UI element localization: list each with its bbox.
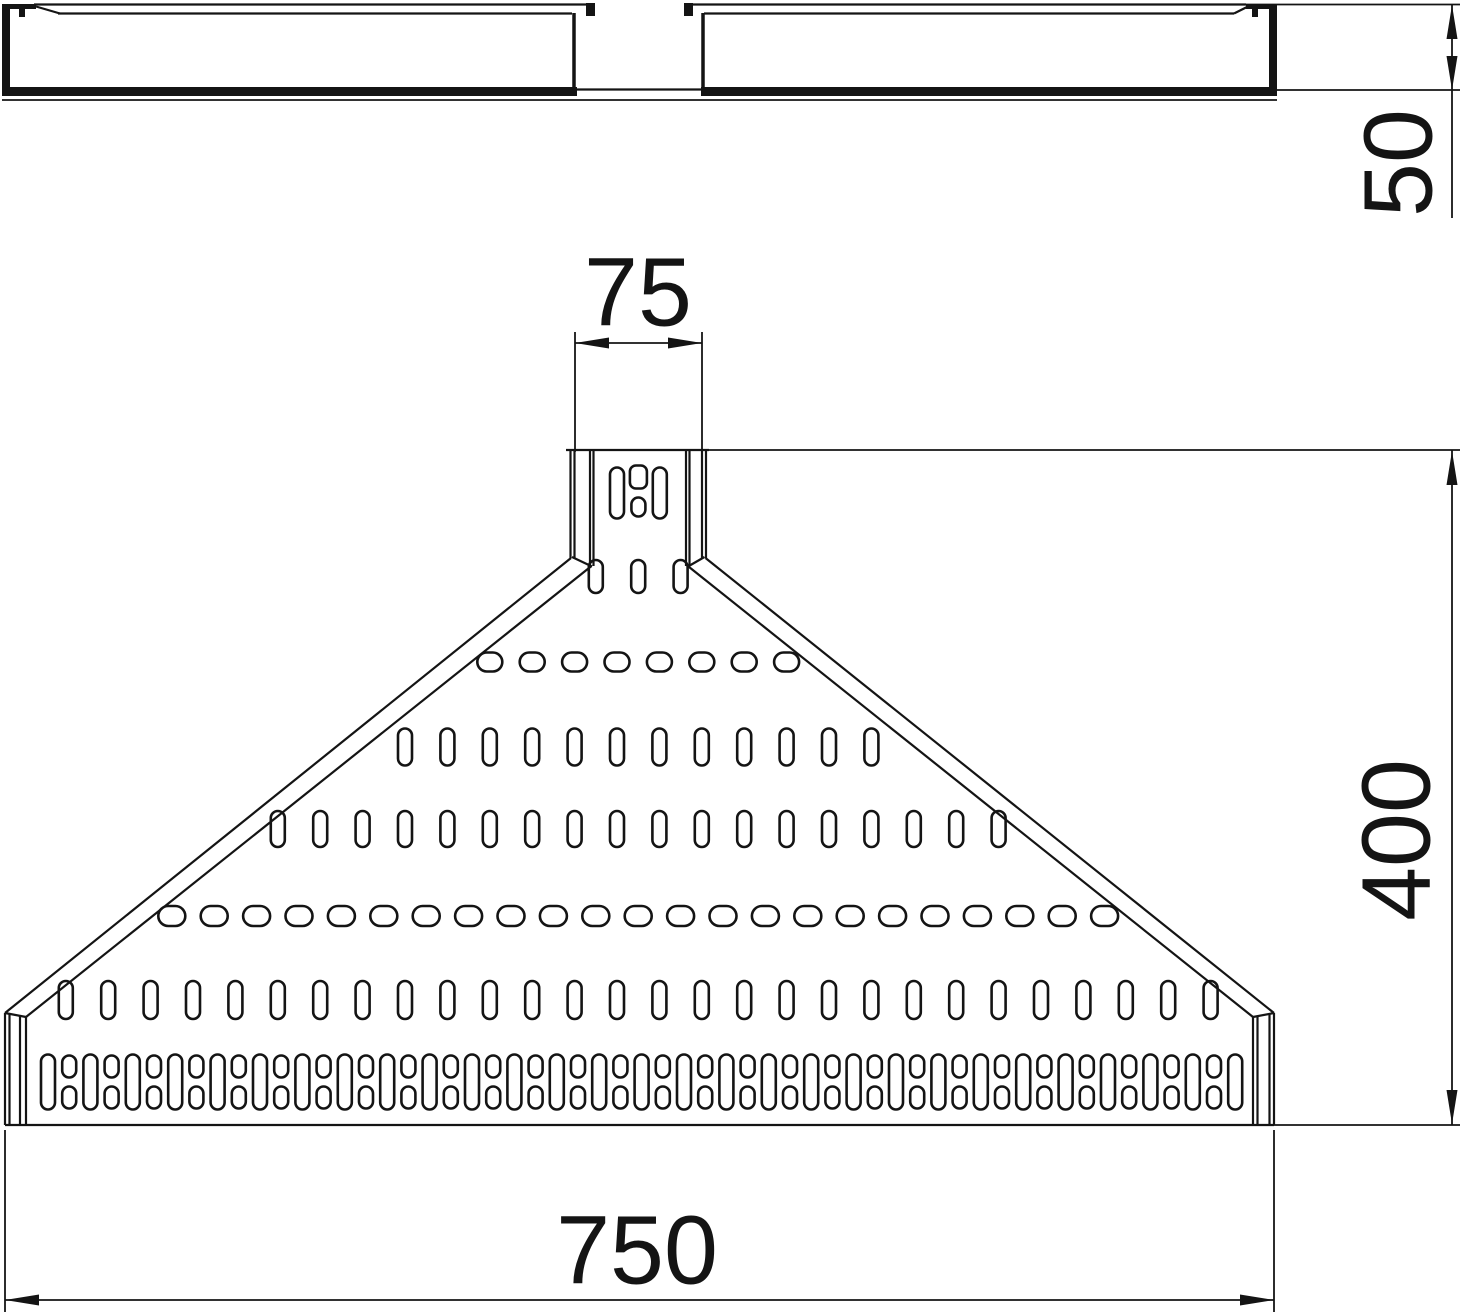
perforation-slot [992, 811, 1006, 847]
perforation-slot [483, 729, 497, 766]
perforation-slot [635, 1055, 649, 1110]
perforation-slot [1034, 981, 1048, 1019]
perforation-slot [313, 811, 327, 847]
dimension-label-top-width: 75 [584, 238, 692, 347]
perforation-slot [783, 1056, 797, 1078]
perforation-slot [105, 1056, 119, 1078]
dimension-length-400: 400 [709, 450, 1460, 1125]
perforation-slot [822, 811, 836, 847]
perforation-slot [440, 729, 454, 766]
perforation-slot [868, 1056, 882, 1078]
perforation-slot [1080, 1087, 1094, 1109]
perforation-slot [189, 1056, 203, 1078]
perforation-slot [380, 1055, 394, 1110]
perforation-slot [780, 811, 794, 847]
dimension-top-width-75: 75 [575, 238, 702, 453]
perforation-slot [83, 1055, 97, 1110]
perforation-slot [520, 653, 545, 672]
perforation-slot [168, 1055, 182, 1110]
perforation-slot [964, 906, 991, 926]
perforation-slot [440, 981, 454, 1019]
perforation-slot [571, 1087, 585, 1109]
perforation-slot [864, 729, 878, 766]
perforation-slot [147, 1087, 161, 1109]
perforation-slot [879, 906, 906, 926]
perforation-slot [498, 906, 525, 926]
perforation-slot [610, 468, 624, 519]
perforation-slot [847, 1055, 861, 1110]
perforation-slot [455, 906, 482, 926]
perforation-slot [610, 811, 624, 847]
perforation-slot [105, 1087, 119, 1109]
perforation-slot [440, 811, 454, 847]
perforation-slot [398, 811, 412, 847]
perforation-slot [949, 811, 963, 847]
perforation-slot [1122, 1087, 1136, 1109]
perforation-slot [732, 653, 757, 672]
perforation-slot [610, 729, 624, 766]
perforation-slot [953, 1087, 967, 1109]
perforation-slot [653, 468, 667, 519]
perforation-slot [144, 981, 158, 1019]
perforation-slot [698, 1087, 712, 1109]
perforation-slot [822, 729, 836, 766]
perforation-slot [1186, 1055, 1200, 1110]
perforation-slot [592, 1055, 606, 1110]
perforation-slot [401, 1056, 415, 1078]
perforation-slot [907, 981, 921, 1019]
dimension-base-width-750: 750 [5, 1130, 1274, 1312]
perforation-slot [737, 729, 751, 766]
perforation-slot [317, 1056, 331, 1078]
perforation-pattern [41, 466, 1242, 1110]
perforation-slot [483, 981, 497, 1019]
perforation-slot [359, 1056, 373, 1078]
perforation-slot [444, 1056, 458, 1078]
perforation-slot [158, 906, 185, 926]
perforation-slot [992, 981, 1006, 1019]
perforation-slot [529, 1087, 543, 1109]
perforation-slot [1091, 906, 1118, 926]
dimension-label-base-width: 750 [556, 1196, 718, 1305]
perforation-slot [825, 1087, 839, 1109]
perforation-slot [677, 1055, 691, 1110]
perforation-slot [907, 811, 921, 847]
arrow-right-icon [1240, 1295, 1274, 1306]
perforation-slot [211, 1055, 225, 1110]
perforation-slot [864, 811, 878, 847]
perforation-slot [568, 981, 582, 1019]
perforation-slot [398, 981, 412, 1019]
perforation-slot [613, 1087, 627, 1109]
perforation-slot [652, 729, 666, 766]
perforation-slot [525, 811, 539, 847]
perforation-slot [101, 981, 115, 1019]
perforation-slot [822, 981, 836, 1019]
perforation-slot [695, 811, 709, 847]
perforation-slot [186, 981, 200, 1019]
perforation-slot [525, 981, 539, 1019]
perforation-slot [1143, 1055, 1157, 1110]
side-left-clip-icon [19, 4, 25, 17]
perforation-slot [804, 1055, 818, 1110]
perforation-slot [1049, 906, 1076, 926]
side-view [2, 3, 1277, 100]
perforation-slot [568, 729, 582, 766]
perforation-slot [413, 906, 440, 926]
perforation-slot [317, 1087, 331, 1109]
perforation-slot [695, 729, 709, 766]
perforation-slot [689, 653, 714, 672]
perforation-slot [652, 811, 666, 847]
perforation-slot [540, 906, 567, 926]
perforation-slot [995, 1087, 1009, 1109]
perforation-slot [922, 906, 949, 926]
perforation-slot [253, 1055, 267, 1110]
perforation-slot [189, 1087, 203, 1109]
perforation-slot [444, 1087, 458, 1109]
perforation-slot [910, 1087, 924, 1109]
perforation-slot [1207, 1056, 1221, 1078]
perforation-slot [1037, 1087, 1051, 1109]
perforation-slot [774, 653, 799, 672]
perforation-slot [201, 906, 228, 926]
perforation-slot [477, 653, 502, 672]
perforation-slot [719, 1055, 733, 1110]
perforation-slot [59, 981, 73, 1019]
side-right-end-cap [1269, 4, 1277, 96]
perforation-slot [647, 653, 672, 672]
reducer-technical-drawing: 50 [0, 0, 1466, 1316]
perforation-slot [568, 811, 582, 847]
arrow-left-icon [5, 1295, 39, 1306]
perforation-slot [837, 906, 864, 926]
perforation-slot [370, 906, 397, 926]
plan-view [5, 450, 1274, 1125]
perforation-slot [286, 906, 313, 926]
perforation-slot [710, 906, 737, 926]
perforation-slot [780, 981, 794, 1019]
perforation-slot [995, 1056, 1009, 1078]
perforation-slot [631, 560, 645, 593]
perforation-slot [825, 1056, 839, 1078]
perforation-slot [359, 1087, 373, 1109]
perforation-slot [1207, 1087, 1221, 1109]
perforation-slot [762, 1055, 776, 1110]
perforation-slot [910, 1056, 924, 1078]
perforation-slot [949, 981, 963, 1019]
perforation-slot [243, 906, 270, 926]
perforation-slot [507, 1055, 521, 1110]
perforation-slot [401, 1087, 415, 1109]
perforation-slot [667, 906, 694, 926]
perforation-slot [794, 906, 821, 926]
perforation-slot [313, 981, 327, 1019]
perforation-slot [752, 906, 779, 926]
perforation-slot [613, 1056, 627, 1078]
perforation-slot [562, 653, 587, 672]
perforation-slot [147, 1056, 161, 1078]
perforation-slot [1165, 1056, 1179, 1078]
perforation-slot [62, 1056, 76, 1078]
perforation-slot [625, 906, 652, 926]
perforation-slot [338, 1055, 352, 1110]
perforation-slot [1016, 1055, 1030, 1110]
perforation-slot [631, 498, 645, 517]
perforation-slot [483, 811, 497, 847]
perforation-slot [232, 1087, 246, 1109]
perforation-slot [1228, 1055, 1242, 1110]
perforation-slot [274, 1087, 288, 1109]
perforation-slot [328, 906, 355, 926]
perforation-slot [1161, 981, 1175, 1019]
perforation-slot [741, 1087, 755, 1109]
arrow-down-icon [1447, 1090, 1458, 1124]
dimension-label-length: 400 [1342, 759, 1451, 921]
perforation-slot [695, 981, 709, 1019]
perforation-slot [698, 1056, 712, 1078]
perforation-slot [931, 1055, 945, 1110]
perforation-slot [1165, 1087, 1179, 1109]
side-left-end-cap [2, 4, 10, 96]
perforation-slot [1006, 906, 1033, 926]
perforation-slot [465, 1055, 479, 1110]
perforation-slot [656, 1056, 670, 1078]
perforation-slot [610, 981, 624, 1019]
perforation-slot [356, 811, 370, 847]
dimension-label-height: 50 [1344, 109, 1453, 217]
arrow-down-icon [1447, 56, 1458, 90]
perforation-slot [62, 1087, 76, 1109]
perforation-slot [889, 1055, 903, 1110]
perforation-slot [232, 1056, 246, 1078]
perforation-slot [1076, 981, 1090, 1019]
perforation-slot [423, 1055, 437, 1110]
perforation-slot [868, 1087, 882, 1109]
perforation-slot [582, 906, 609, 926]
technical-drawing-page: 50 [0, 0, 1466, 1316]
perforation-slot [741, 1056, 755, 1078]
perforation-slot [571, 1056, 585, 1078]
perforation-slot [605, 653, 630, 672]
perforation-slot [41, 1055, 55, 1110]
side-right-clip-icon [1252, 4, 1258, 17]
dimension-height-50: 50 [1246, 4, 1460, 218]
perforation-slot [356, 981, 370, 1019]
perforation-slot [550, 1055, 564, 1110]
perforation-slot [780, 729, 794, 766]
perforation-slot [1059, 1055, 1073, 1110]
side-center-hook-left-icon [586, 3, 595, 16]
perforation-slot [1122, 1056, 1136, 1078]
perforation-slot [486, 1056, 500, 1078]
perforation-slot [1101, 1055, 1115, 1110]
perforation-slot [1080, 1056, 1094, 1078]
perforation-slot [126, 1055, 140, 1110]
arrow-up-icon [1447, 451, 1458, 485]
perforation-slot [737, 811, 751, 847]
perforation-slot [783, 1087, 797, 1109]
perforation-slot [295, 1055, 309, 1110]
perforation-slot [274, 1056, 288, 1078]
perforation-slot [630, 466, 647, 489]
perforation-slot [271, 981, 285, 1019]
right-flare-rail [706, 558, 1275, 1013]
perforation-slot [953, 1056, 967, 1078]
perforation-slot [974, 1055, 988, 1110]
left-flare-rail [5, 558, 571, 1013]
perforation-slot [525, 729, 539, 766]
perforation-slot [656, 1087, 670, 1109]
perforation-slot [864, 981, 878, 1019]
perforation-slot [486, 1087, 500, 1109]
perforation-slot [529, 1056, 543, 1078]
perforation-slot [228, 981, 242, 1019]
perforation-slot [652, 981, 666, 1019]
perforation-slot [398, 729, 412, 766]
arrow-up-icon [1447, 5, 1458, 39]
perforation-slot [1037, 1056, 1051, 1078]
perforation-slot [737, 981, 751, 1019]
perforation-slot [1119, 981, 1133, 1019]
